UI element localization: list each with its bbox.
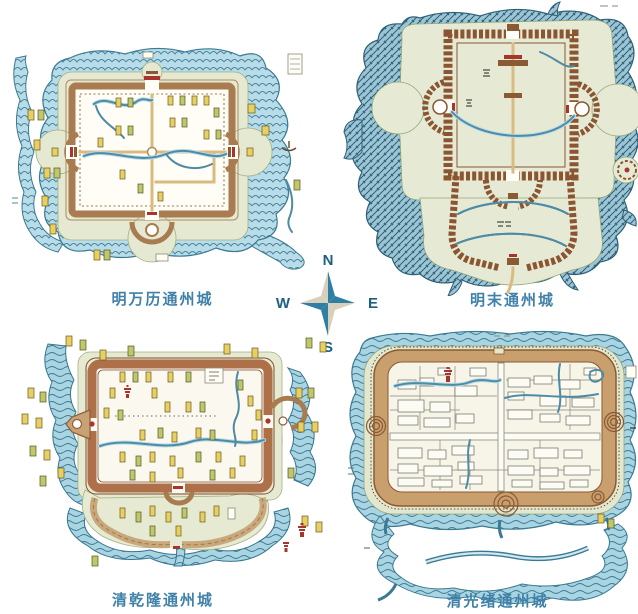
qianlong-city-wall: [66, 358, 305, 503]
caption-ming-wanli: 明万历通州城: [40, 288, 285, 309]
caption-qing-guangxu: 清光绪通州城: [375, 590, 620, 611]
compass-star: [300, 271, 355, 336]
compass-label-west: W: [276, 295, 291, 312]
map-qing-qianlong-image: [0, 330, 335, 600]
tongzhou-historical-maps-figure: 明万历通州城: [0, 0, 638, 614]
compass-label-north: N: [323, 252, 334, 269]
caption-ming-late: 明末通州城: [390, 289, 635, 310]
map-qing-guangxu-image: [338, 330, 638, 614]
compass-label-east: E: [368, 295, 378, 312]
caption-qing-qianlong: 清乾隆通州城: [40, 589, 286, 610]
